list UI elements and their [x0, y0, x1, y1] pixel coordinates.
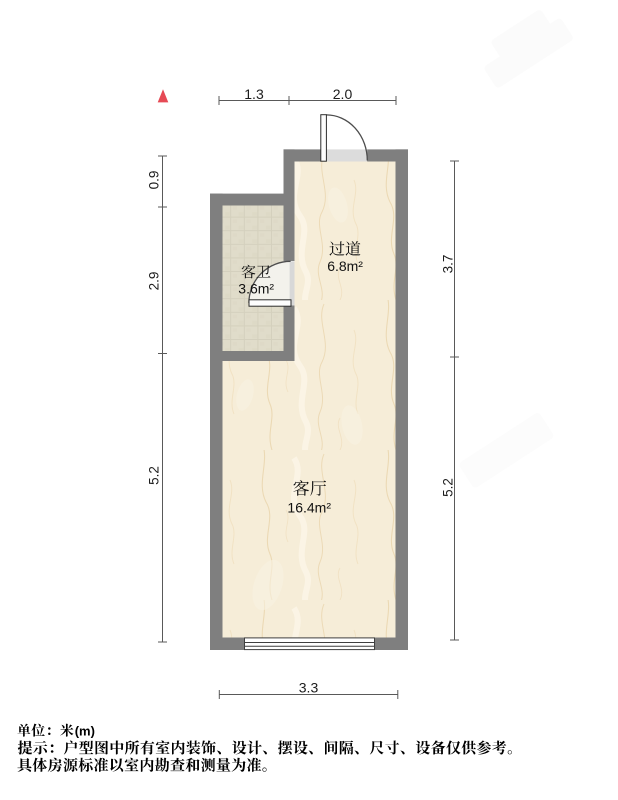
- svg-text:2.0: 2.0: [333, 86, 353, 102]
- svg-text:3.6m²: 3.6m²: [238, 281, 274, 297]
- svg-text:16.4m²: 16.4m²: [287, 500, 331, 516]
- svg-text:3.7: 3.7: [441, 255, 456, 274]
- svg-text:1.3: 1.3: [244, 86, 264, 102]
- svg-text:5.2: 5.2: [147, 466, 162, 485]
- svg-text:6.8m²: 6.8m²: [327, 258, 363, 274]
- svg-text:2.9: 2.9: [147, 272, 162, 291]
- svg-text:3.3: 3.3: [299, 680, 319, 696]
- svg-text:(m): (m): [75, 723, 95, 738]
- svg-text:5.2: 5.2: [441, 478, 456, 497]
- svg-text:0.9: 0.9: [147, 171, 162, 190]
